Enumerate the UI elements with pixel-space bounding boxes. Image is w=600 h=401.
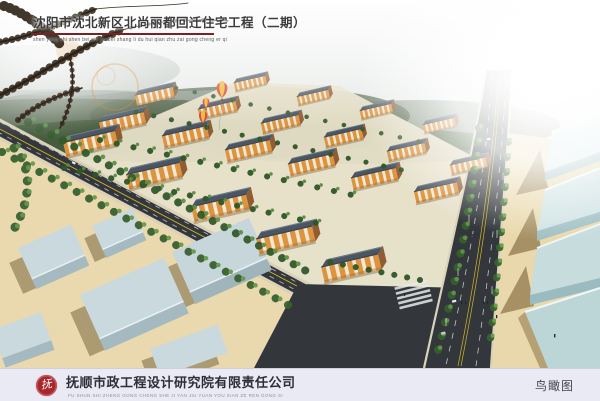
company-logo-icon: 抚	[36, 375, 57, 396]
company-block: 抚顺市政工程设计研究院有限责任公司 FU SHUN SHI ZHENG GONG…	[66, 372, 535, 398]
aerial-rendering	[0, 0, 600, 368]
title-block: 沈阳市沈北新区北尚丽都回迁住宅工程（二期） shen yang shi shen…	[33, 12, 306, 43]
logo-glyph: 抚	[40, 379, 52, 391]
presentation-board: 沈阳市沈北新区北尚丽都回迁住宅工程（二期） shen yang shi shen…	[0, 0, 600, 401]
footer-bar: 抚 抚顺市政工程设计研究院有限责任公司 FU SHUN SHI ZHENG GO…	[0, 368, 600, 401]
company-name: 抚顺市政工程设计研究院有限责任公司	[66, 372, 535, 391]
project-title-pinyin: shen yang shi shen bei xin qu bei shang …	[33, 37, 306, 43]
company-pinyin: FU SHUN SHI ZHENG GONG CHENG SHE JI YAN …	[68, 393, 535, 398]
title-underline	[31, 33, 214, 35]
view-type-label: 鸟瞰图	[535, 377, 574, 394]
project-title: 沈阳市沈北新区北尚丽都回迁住宅工程（二期）	[33, 12, 306, 31]
